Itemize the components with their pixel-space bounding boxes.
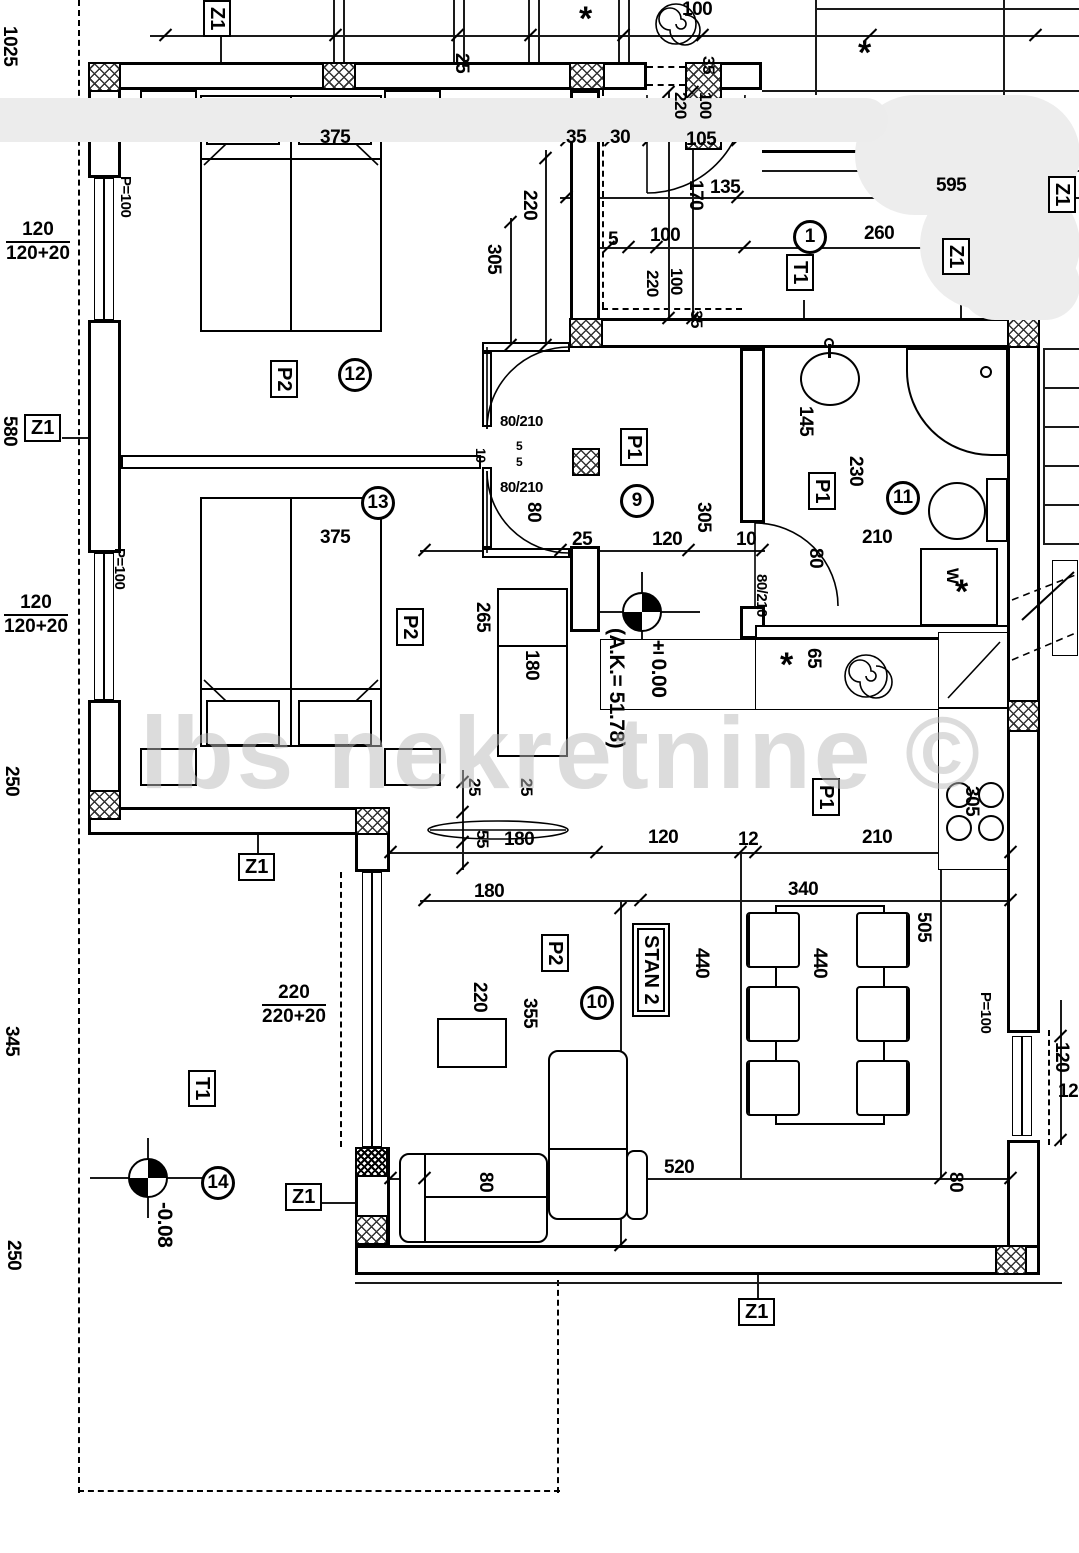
ref-box-z1: Z1 (238, 853, 275, 881)
ref-box-z1: Z1 (24, 414, 61, 442)
circled-number: 1 (793, 220, 827, 254)
dim-label: P=100 (118, 176, 133, 217)
dim-label: 12 (738, 830, 758, 849)
ref-box-t1: T1 (188, 1070, 216, 1107)
dim-label: 375 (320, 528, 350, 547)
dim-label: 145 (796, 406, 815, 436)
stair-diagonal-dashed (1012, 632, 1078, 660)
fraction-bottom: 120+20 (4, 617, 68, 637)
dim-label: 1025 (0, 26, 19, 66)
circled-number: 12 (338, 358, 372, 392)
fraction-bottom: 220+20 (262, 1007, 326, 1027)
ref-box-p1: P1 (808, 472, 836, 510)
ref-box-z1: Z1 (1048, 176, 1076, 213)
dim-label: 305 (484, 244, 503, 274)
dim-label: 80/210 (754, 574, 769, 617)
dim-label: P=100 (112, 548, 127, 589)
dim-label: 120 (648, 828, 678, 847)
dim-label: 55 (474, 830, 491, 848)
fraction-bottom: 120+20 (6, 244, 70, 264)
ref-box-z1: Z1 (942, 238, 970, 275)
dim-label: 80 (806, 548, 825, 568)
dim-label: 180 (504, 830, 534, 849)
dim-label: 80 (476, 1172, 495, 1192)
dim-label: 35 (700, 56, 717, 74)
dim-label: 305 (694, 502, 713, 532)
watermark: lbs nekretnine © (140, 695, 983, 812)
dim-label: 80 (946, 1172, 965, 1192)
dim-label: 180 (474, 882, 504, 901)
elevation-value: -0.08 (154, 1202, 175, 1247)
dim-label: 100 (682, 0, 712, 19)
dim-label: 355 (520, 998, 539, 1028)
dim-label: 210 (862, 528, 892, 547)
dim-label: 170 (686, 180, 705, 210)
circled-number: 9 (620, 484, 654, 518)
dim-label: 135 (710, 178, 740, 197)
dim-label: 100 (697, 92, 714, 119)
fraction-label: 220220+20 (262, 983, 326, 1027)
dim-label: 80/210 (500, 480, 543, 495)
scan-band (0, 98, 888, 142)
asterisk-symbol: * (955, 587, 968, 597)
dim-label: 120 (652, 530, 682, 549)
fraction-top: 120 (6, 220, 70, 240)
dim-label: 80 (524, 502, 543, 522)
dim-label: 5 (516, 456, 522, 468)
dim-label: 230 (846, 456, 865, 486)
circled-number: 13 (361, 486, 395, 520)
elevation-marker (128, 1158, 168, 1198)
ref-box-p1: P1 (620, 428, 648, 466)
dim-label: 340 (788, 880, 818, 899)
asterisk-symbol: * (858, 48, 871, 58)
dim-label: 220 (672, 92, 689, 119)
ref-box-t1: T1 (786, 254, 814, 291)
dim-label: 105 (686, 130, 716, 149)
dim-label: 10 (736, 530, 756, 549)
dim-label: 220 (470, 982, 489, 1012)
ref-box-z1: Z1 (738, 1298, 775, 1326)
dim-label: 595 (936, 176, 966, 195)
dim-label: 10 (474, 448, 488, 463)
dim-label: 25 (572, 530, 592, 549)
dim-label: 35 (688, 310, 705, 328)
circled-number: 11 (886, 481, 920, 515)
dim-label: 80/210 (500, 414, 543, 429)
dim-label: W (944, 568, 961, 584)
dim-label: 5 (516, 440, 522, 452)
dim-label: 265 (473, 602, 492, 632)
bed-fold-line (204, 144, 226, 165)
stair-diagonal-dashed (1012, 574, 1078, 600)
asterisk-symbol: * (579, 14, 592, 24)
dim-label: 100 (668, 268, 685, 295)
dim-label: 505 (914, 912, 933, 942)
asterisk-symbol: * (780, 660, 793, 670)
ref-box-stan-2: STAN 2 (637, 928, 665, 1012)
dim-label: 250 (2, 766, 21, 796)
fraction-top: 220 (262, 983, 326, 1003)
elevation-marker (622, 592, 662, 632)
dim-label: 220 (520, 190, 539, 220)
stair-diagonal (1022, 572, 1074, 620)
fraction-top: 120 (4, 593, 68, 613)
sink-faucet-line (948, 642, 1000, 698)
ref-box-z1: Z1 (203, 0, 231, 37)
dim-label: 375 (320, 128, 350, 147)
dim-label: 65 (804, 648, 823, 668)
dim-label: 5 (608, 230, 618, 249)
dim-label: 580 (0, 416, 19, 446)
circled-number: 10 (580, 986, 614, 1020)
ref-box-p2: P2 (541, 934, 569, 972)
dim-label: 210 (862, 828, 892, 847)
dim-label: 260 (864, 224, 894, 243)
ref-box-p2: P2 (396, 608, 424, 646)
dim-label: 120 (1052, 1042, 1071, 1072)
scan-blob (960, 250, 1079, 320)
dim-label: P=100 (978, 992, 993, 1033)
dim-label: 345 (2, 1026, 21, 1056)
dim-label: 440 (810, 948, 829, 978)
fraction-label: 120120+20 (4, 593, 68, 637)
dim-label: 250 (4, 1240, 23, 1270)
dim-label: 440 (692, 948, 711, 978)
boiler-spiral (849, 660, 892, 698)
dim-label: 100 (650, 226, 680, 245)
bed-fold-line (356, 144, 378, 165)
circled-number: 14 (201, 1166, 235, 1200)
dim-label: 180 (522, 650, 541, 680)
fraction-label: 120120+20 (6, 220, 70, 264)
dim-label: 520 (664, 1158, 694, 1177)
dim-label: 220 (644, 270, 661, 297)
dim-label: 25 (452, 53, 471, 73)
dim-label: 120 (1058, 1082, 1079, 1101)
dim-label: 35 (566, 128, 586, 147)
ref-box-p2: P2 (270, 360, 298, 398)
ref-box-z1: Z1 (285, 1183, 322, 1211)
floor-plan-canvas: lbs nekretnine © (0, 0, 1079, 1553)
dim-label: 30 (610, 128, 630, 147)
elevation-value: ±0.00 (648, 636, 669, 697)
